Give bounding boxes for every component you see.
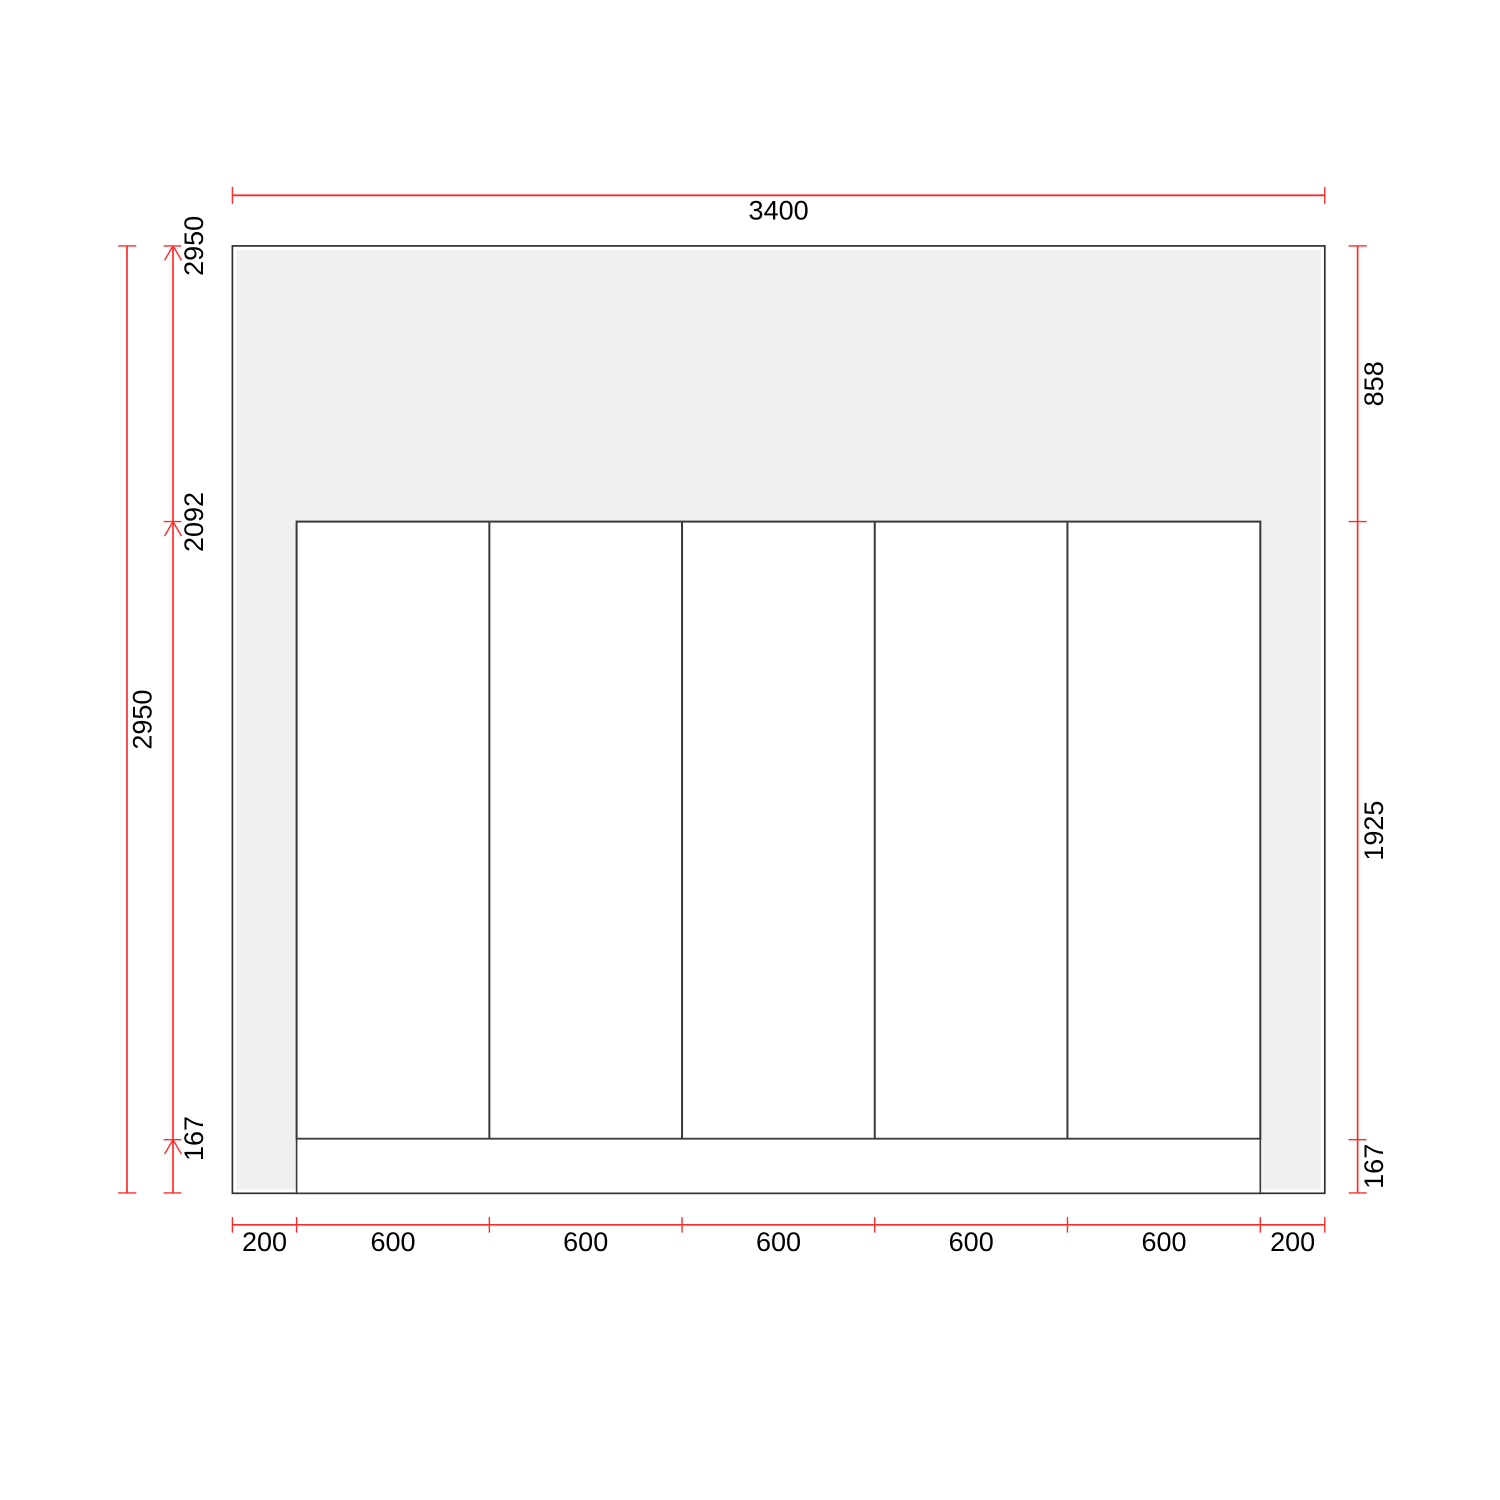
svg-text:2092: 2092 — [179, 492, 209, 552]
svg-text:2950: 2950 — [127, 690, 157, 750]
svg-text:167: 167 — [179, 1116, 209, 1161]
svg-text:600: 600 — [563, 1227, 608, 1257]
svg-text:600: 600 — [370, 1227, 415, 1257]
svg-text:167: 167 — [1359, 1144, 1389, 1189]
svg-text:600: 600 — [1141, 1227, 1186, 1257]
svg-text:200: 200 — [1270, 1227, 1315, 1257]
svg-text:3400: 3400 — [749, 195, 809, 225]
svg-text:600: 600 — [949, 1227, 994, 1257]
svg-text:600: 600 — [756, 1227, 801, 1257]
svg-text:200: 200 — [242, 1227, 287, 1257]
svg-text:858: 858 — [1359, 361, 1389, 406]
svg-text:1925: 1925 — [1359, 801, 1389, 861]
svg-text:2950: 2950 — [179, 216, 209, 276]
